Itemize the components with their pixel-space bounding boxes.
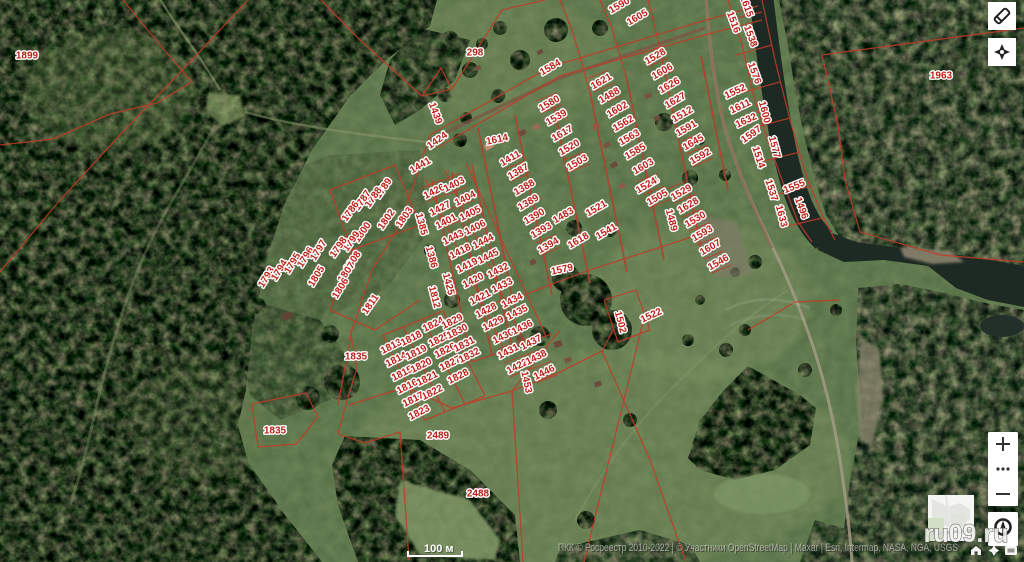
svg-text:2488: 2488 — [467, 489, 490, 500]
svg-text:1899: 1899 — [16, 51, 39, 62]
svg-text:100 м: 100 м — [424, 543, 454, 555]
svg-text:2489: 2489 — [427, 431, 450, 442]
svg-text:298: 298 — [467, 48, 484, 59]
svg-text:ru09.ru: ru09.ru — [924, 520, 1009, 548]
svg-text:1963: 1963 — [930, 71, 953, 82]
svg-text:1835: 1835 — [345, 352, 368, 363]
svg-text:ПКК © Росреестр 2010-2022 | ©: ПКК © Росреестр 2010-2022 | © Участники … — [558, 542, 958, 554]
svg-text:1835: 1835 — [264, 426, 287, 437]
